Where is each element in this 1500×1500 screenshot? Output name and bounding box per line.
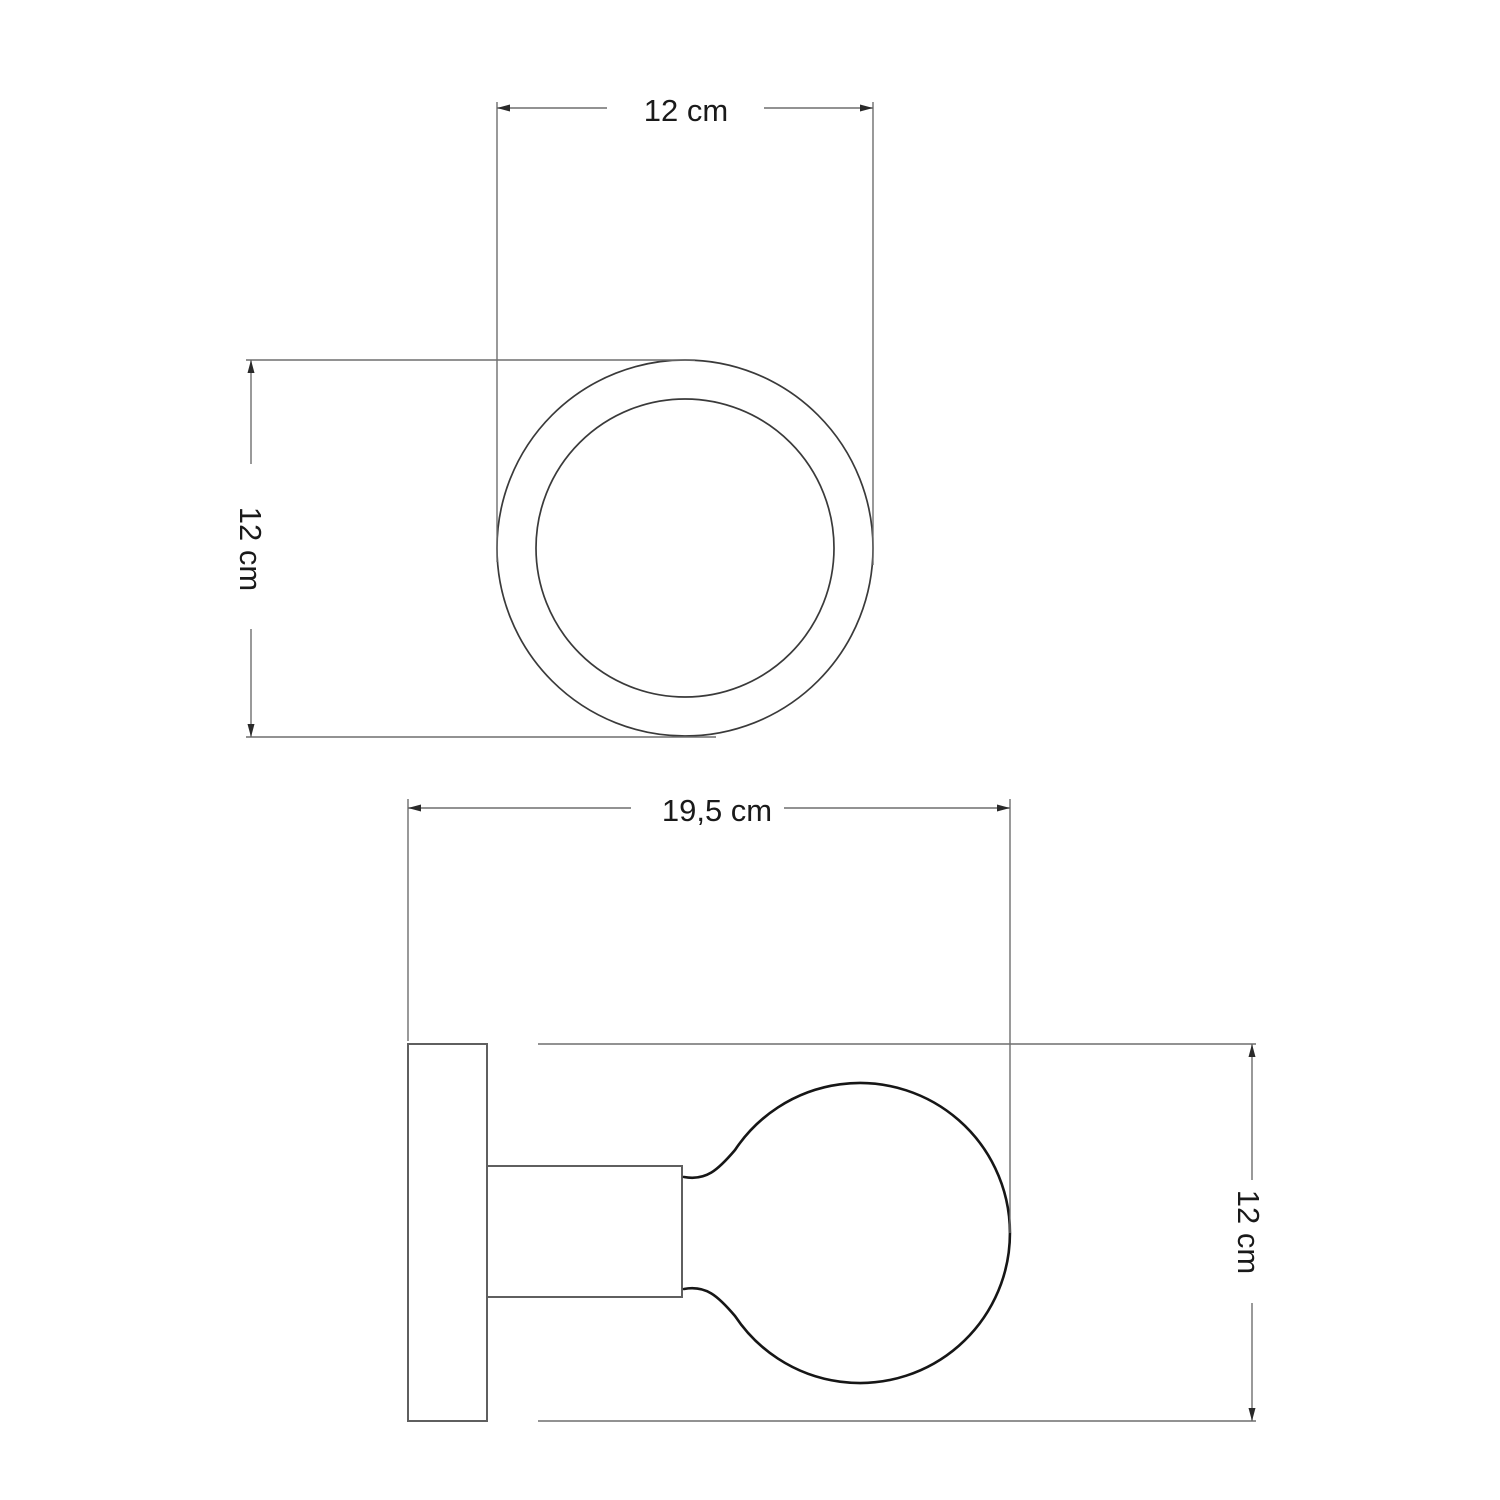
bulb-outline (684, 1083, 1010, 1383)
arrowhead-left-icon (408, 805, 421, 812)
inner-ring (536, 399, 834, 697)
outer-ring (497, 360, 873, 736)
arrowhead-down-icon (1249, 1408, 1256, 1421)
side-view-height-label: 12 cm (1231, 1190, 1266, 1274)
arrowhead-up-icon (248, 360, 255, 373)
side-view-height-dimension: 12 cm (538, 1044, 1266, 1421)
technical-drawing-page: 12 cm 12 cm (0, 0, 1500, 1500)
top-view-width-label: 12 cm (644, 93, 728, 128)
arrowhead-down-icon (248, 724, 255, 737)
top-view-height-dimension: 12 cm (233, 360, 716, 737)
top-view-width-dimension: 12 cm (497, 93, 873, 565)
arrowhead-right-icon (997, 805, 1010, 812)
arrowhead-left-icon (497, 105, 510, 112)
side-view: 19,5 cm 12 cm (408, 793, 1266, 1421)
wall-plate (408, 1044, 487, 1421)
top-view-height-label: 12 cm (233, 507, 268, 591)
arrowhead-right-icon (860, 105, 873, 112)
lamp-holder (487, 1166, 682, 1297)
arrowhead-up-icon (1249, 1044, 1256, 1057)
lamp-dimension-drawing: 12 cm 12 cm (0, 0, 1500, 1500)
side-view-width-label: 19,5 cm (662, 793, 772, 828)
top-view: 12 cm 12 cm (233, 93, 873, 737)
